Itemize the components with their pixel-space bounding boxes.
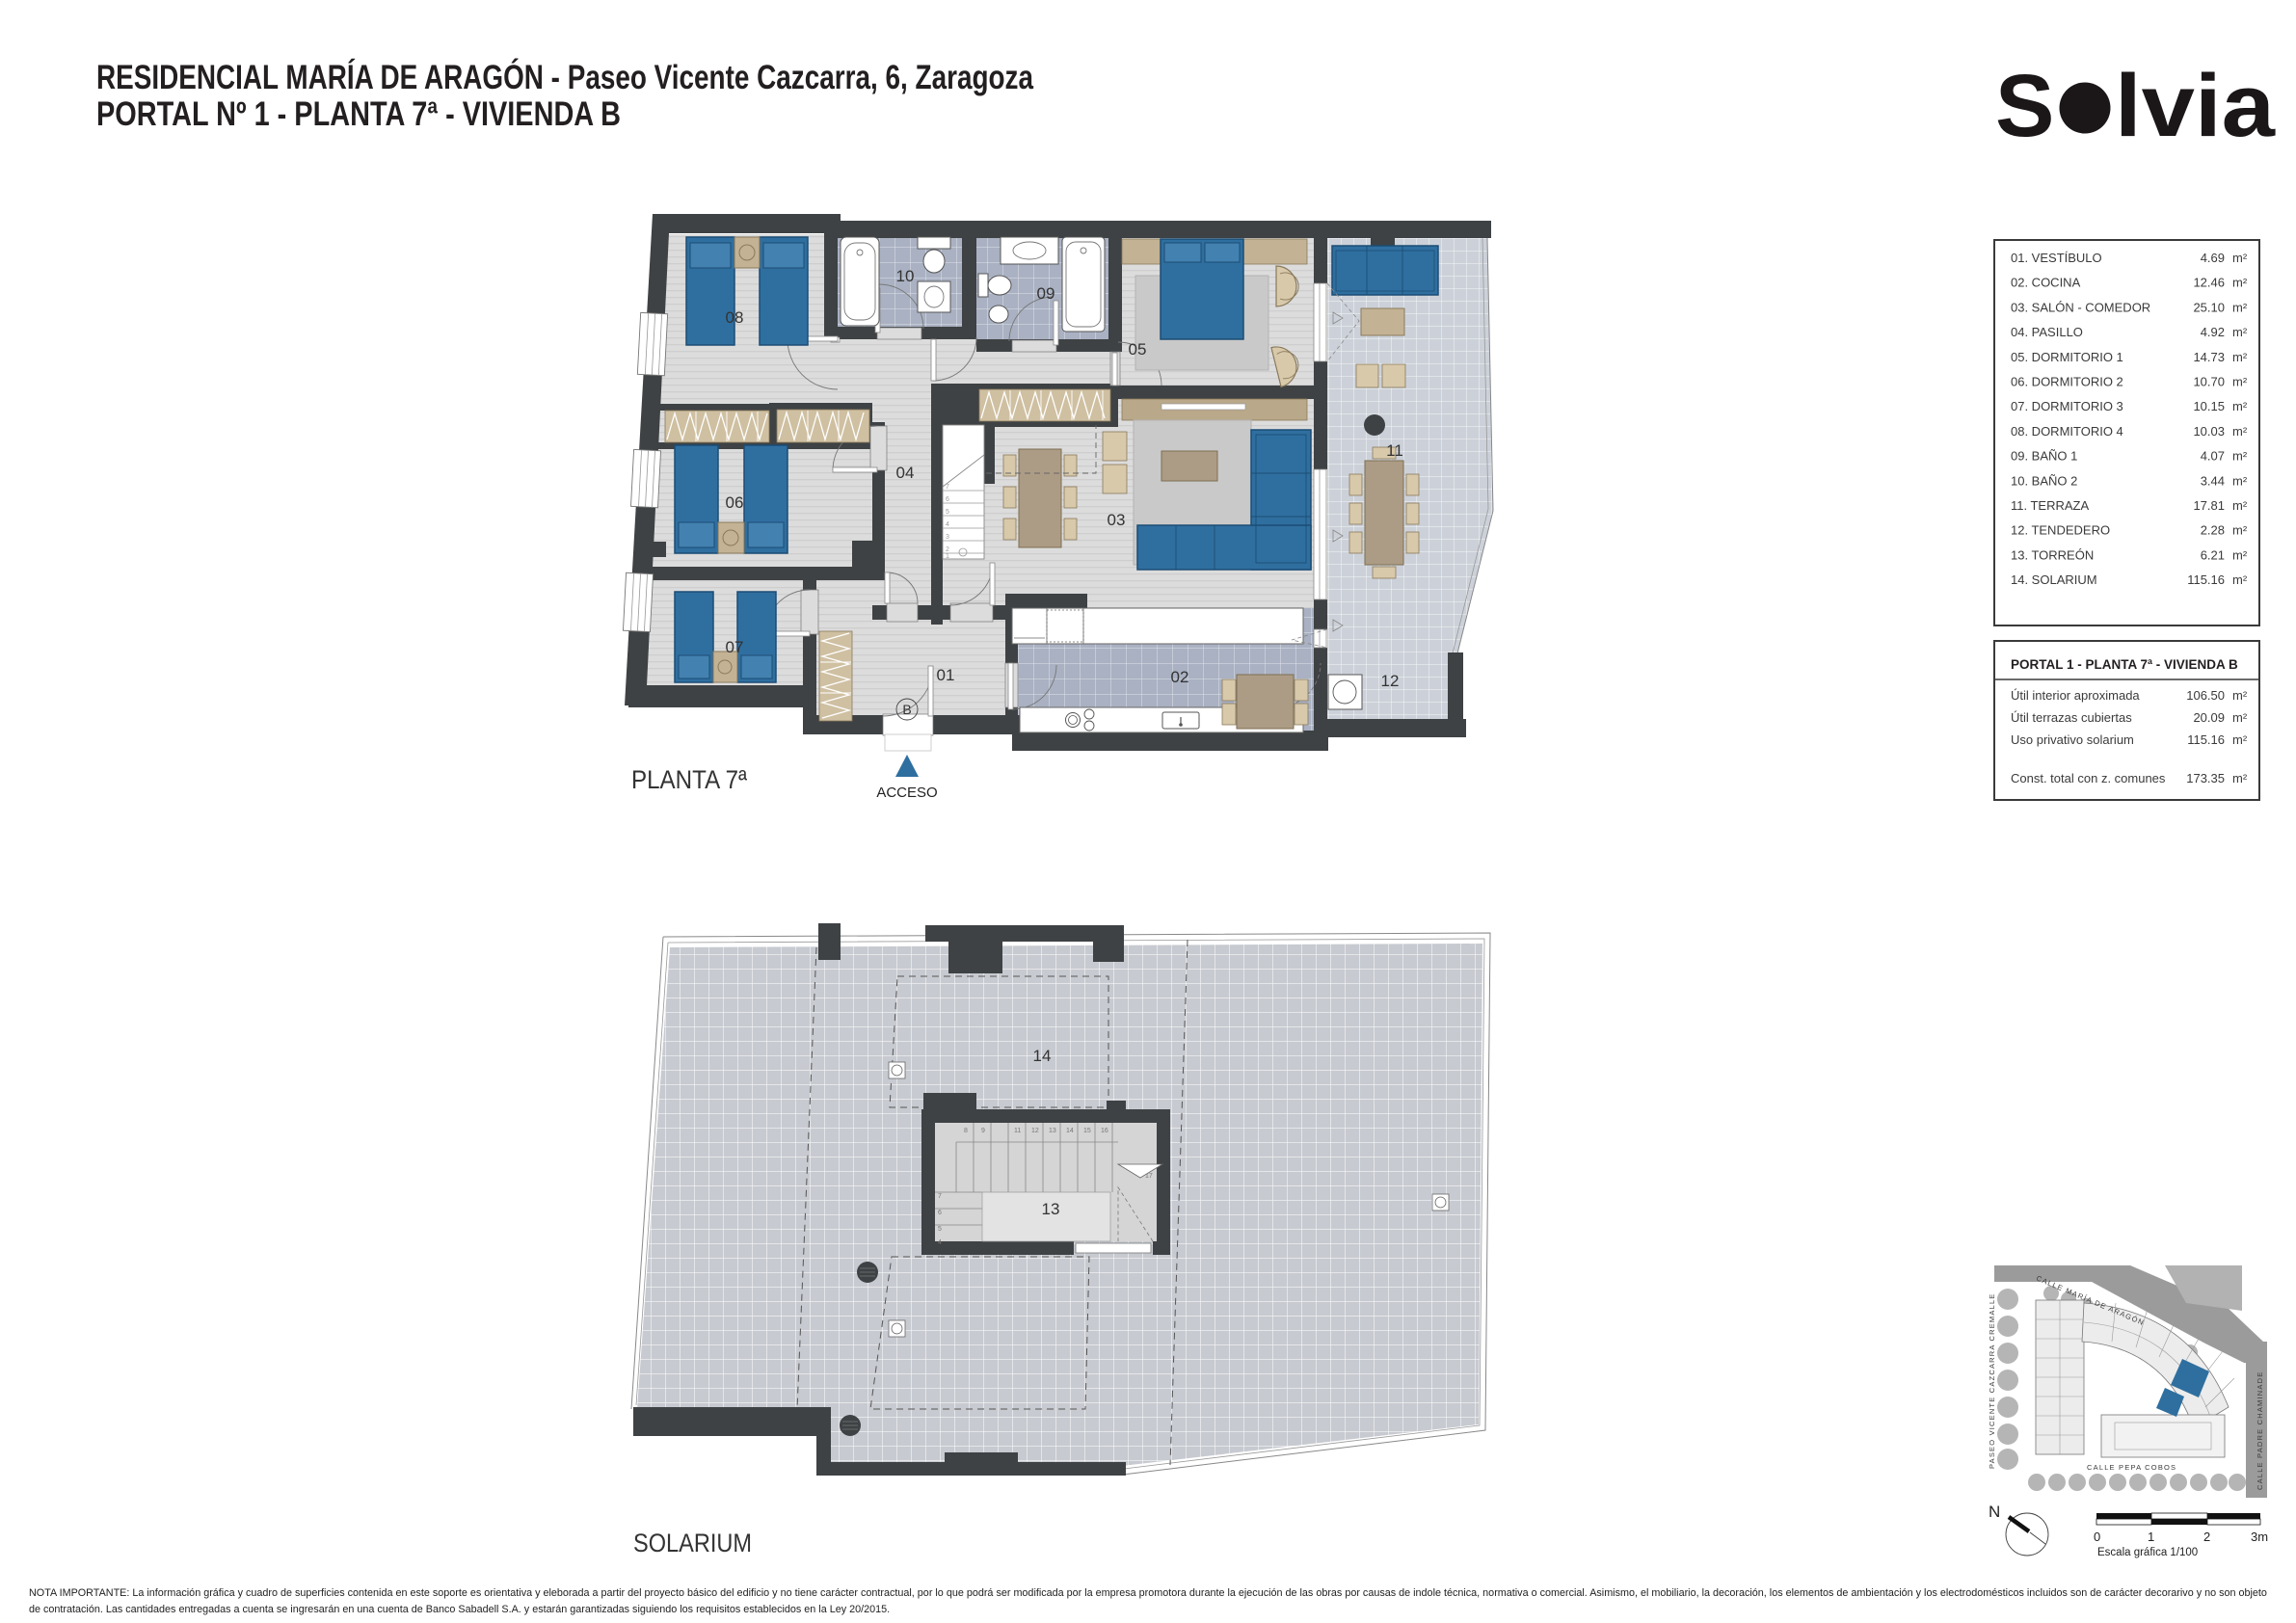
svg-text:09: 09 [1037, 284, 1055, 303]
svg-text:106.50: 106.50 [2186, 688, 2225, 703]
svg-text:11: 11 [1014, 1128, 1021, 1134]
svg-text:B: B [902, 702, 911, 717]
svg-text:PORTAL Nº 1 - PLANTA 7ª -: PORTAL Nº 1 - PLANTA 7ª - VIVIENDA B [96, 95, 621, 133]
svg-text:17.81: 17.81 [2193, 498, 2225, 513]
svg-text:m²: m² [2232, 473, 2248, 488]
svg-text:07. DORMITORIO 3: 07. DORMITORIO 3 [2011, 399, 2123, 413]
svg-text:PORTAL 1 - PLANTA 7ª - VIVIEND: PORTAL 1 - PLANTA 7ª - VIVIENDA B [2011, 657, 2238, 672]
svg-text:m²: m² [2232, 449, 2248, 464]
svg-text:2: 2 [2203, 1530, 2210, 1544]
svg-text:25.10: 25.10 [2193, 300, 2225, 314]
svg-text:02: 02 [1171, 668, 1189, 686]
svg-text:6: 6 [938, 1210, 942, 1216]
svg-text:08: 08 [726, 308, 744, 327]
svg-text:3.44: 3.44 [2201, 473, 2225, 488]
svg-text:20.09: 20.09 [2193, 710, 2225, 725]
svg-text:1: 1 [2148, 1530, 2154, 1544]
svg-text:m²: m² [2232, 375, 2248, 389]
svg-text:6.21: 6.21 [2201, 547, 2225, 562]
svg-text:SOLARIUM: SOLARIUM [633, 1529, 752, 1557]
svg-text:115.16: 115.16 [2187, 732, 2225, 747]
svg-text:m²: m² [2232, 688, 2248, 703]
svg-text:03: 03 [1108, 511, 1126, 529]
svg-text:RESIDENCIAL MARÍA DE ARAGÓN -: RESIDENCIAL MARÍA DE ARAGÓN - Paseo Vice… [96, 58, 1033, 96]
svg-text:Const. total con z. comunes: Const. total con z. comunes [2011, 771, 2166, 785]
svg-text:m²: m² [2232, 325, 2248, 339]
svg-text:13. TORREÓN: 13. TORREÓN [2011, 547, 2094, 562]
svg-text:m²: m² [2232, 771, 2248, 785]
svg-text:Útil interior aproximada: Útil interior aproximada [2011, 688, 2140, 703]
svg-text:8: 8 [964, 1128, 968, 1134]
svg-text:01: 01 [937, 666, 955, 684]
svg-text:173.35: 173.35 [2186, 771, 2225, 785]
svg-text:CALLE PADRE CHAMINADE: CALLE PADRE CHAMINADE [2256, 1371, 2264, 1490]
svg-text:m²: m² [2232, 732, 2248, 747]
svg-text:11: 11 [1386, 441, 1403, 460]
svg-text:08. DORMITORIO 4: 08. DORMITORIO 4 [2011, 424, 2123, 439]
svg-text:m²: m² [2232, 523, 2248, 538]
svg-text:10. BAÑO 2: 10. BAÑO 2 [2011, 473, 2077, 488]
svg-text:Escala gráfica 1/100: Escala gráfica 1/100 [2097, 1547, 2198, 1558]
svg-text:12: 12 [1031, 1128, 1039, 1134]
svg-text:12. TENDEDERO: 12. TENDEDERO [2011, 523, 2110, 538]
svg-text:10: 10 [896, 267, 915, 285]
svg-text:m²: m² [2232, 251, 2248, 265]
svg-text:Uso privativo solarium: Uso privativo solarium [2011, 732, 2134, 747]
svg-text:09. BAÑO 1: 09. BAÑO 1 [2011, 449, 2077, 464]
svg-text:2.28: 2.28 [2201, 523, 2225, 538]
svg-text:7: 7 [938, 1193, 942, 1200]
svg-text:115.16: 115.16 [2187, 572, 2225, 587]
svg-text:m²: m² [2232, 300, 2248, 314]
svg-text:03. SALÓN - COMEDOR: 03. SALÓN - COMEDOR [2011, 300, 2150, 314]
svg-text:04: 04 [896, 464, 915, 482]
svg-text:01. VESTÍBULO: 01. VESTÍBULO [2011, 251, 2102, 265]
svg-text:04. PASILLO: 04. PASILLO [2011, 325, 2083, 339]
svg-text:12: 12 [1381, 672, 1400, 690]
svg-text:3m: 3m [2251, 1530, 2268, 1544]
svg-text:06. DORMITORIO 2: 06. DORMITORIO 2 [2011, 375, 2123, 389]
svg-text:14.73: 14.73 [2193, 350, 2225, 364]
svg-text:10.70: 10.70 [2193, 375, 2225, 389]
svg-text:11. TERRAZA: 11. TERRAZA [2011, 498, 2089, 513]
svg-text:07: 07 [726, 638, 744, 656]
svg-text:3: 3 [946, 534, 949, 541]
svg-text:5: 5 [946, 509, 949, 516]
svg-text:12.46: 12.46 [2193, 276, 2225, 290]
svg-text:Útil terrazas cubiertas: Útil terrazas cubiertas [2011, 710, 2132, 725]
svg-text:PASEO VICENTE CAZCARRA CREM: PASEO VICENTE CAZCARRA CREMALLE [1988, 1292, 1996, 1469]
svg-text:PLANTA 7ª: PLANTA 7ª [631, 765, 748, 794]
svg-text:4.92: 4.92 [2201, 325, 2225, 339]
svg-text:05. DORMITORIO 1: 05. DORMITORIO 1 [2011, 350, 2123, 364]
svg-text:10.15: 10.15 [2193, 399, 2225, 413]
svg-text:4: 4 [946, 521, 949, 528]
svg-text:CALLE PEPA COBOS: CALLE PEPA COBOS [2087, 1463, 2176, 1472]
svg-text:4.07: 4.07 [2201, 449, 2225, 464]
svg-text:2: 2 [946, 546, 949, 553]
svg-text:4.69: 4.69 [2201, 251, 2225, 265]
svg-text:4: 4 [938, 1239, 942, 1246]
svg-text:02. COCINA: 02. COCINA [2011, 276, 2081, 290]
svg-text:05: 05 [1129, 340, 1147, 359]
svg-text:7: 7 [946, 484, 949, 491]
svg-text:14: 14 [1066, 1128, 1074, 1134]
svg-text:m²: m² [2232, 424, 2248, 439]
svg-text:m²: m² [2232, 350, 2248, 364]
svg-text:5: 5 [938, 1226, 942, 1233]
svg-text:S: S [1995, 57, 2054, 155]
svg-text:6: 6 [946, 496, 949, 503]
svg-text:13: 13 [1042, 1200, 1060, 1218]
svg-text:16: 16 [1101, 1128, 1108, 1134]
svg-text:m²: m² [2232, 572, 2248, 587]
svg-text:06: 06 [726, 493, 744, 512]
svg-text:9: 9 [981, 1128, 985, 1134]
svg-text:0: 0 [2094, 1530, 2100, 1544]
svg-text:m²: m² [2232, 276, 2248, 290]
svg-text:10.03: 10.03 [2193, 424, 2225, 439]
svg-text:m²: m² [2232, 399, 2248, 413]
svg-text:N: N [1989, 1503, 2000, 1521]
svg-text:1: 1 [946, 553, 949, 560]
svg-text:lvia: lvia [2115, 57, 2276, 155]
svg-text:13: 13 [1049, 1128, 1056, 1134]
svg-text:14: 14 [1033, 1047, 1052, 1065]
svg-text:14. SOLARIUM: 14. SOLARIUM [2011, 572, 2097, 587]
svg-text:de contratación. Las cantidade: de contratación. Las cantidades entregad… [29, 1604, 890, 1615]
svg-text:NOTA IMPORTANTE: La informació: NOTA IMPORTANTE: La información gráfica … [29, 1587, 2267, 1599]
svg-text:15: 15 [1083, 1128, 1091, 1134]
svg-text:m²: m² [2232, 498, 2248, 513]
svg-text:m²: m² [2232, 710, 2248, 725]
svg-text:m²: m² [2232, 547, 2248, 562]
svg-text:ACCESO: ACCESO [876, 785, 937, 801]
